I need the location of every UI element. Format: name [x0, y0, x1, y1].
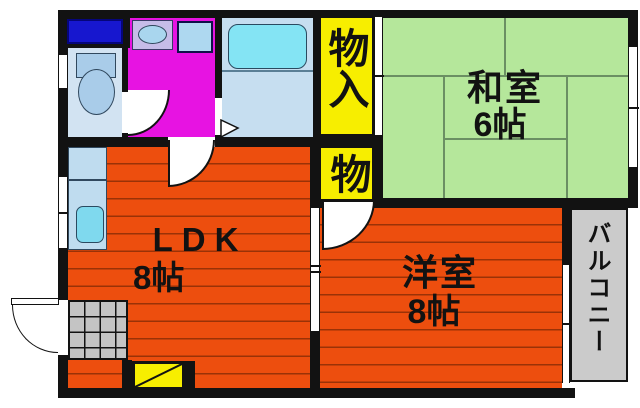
wall-right [628, 10, 638, 47]
kitchen-counter-divider [68, 179, 107, 181]
balcony-label: バルコニー [584, 221, 608, 356]
wall-left [58, 88, 68, 177]
vanity-sink [138, 25, 167, 44]
japanese-room-label: 和室 [440, 70, 570, 106]
kitchen-window [58, 177, 68, 248]
floor-plan: LDK 8帖 和室 6帖 洋室 8帖 物入 物 バルコニー [0, 0, 640, 408]
toilet-bowl [78, 69, 115, 115]
entry-tile [68, 300, 128, 360]
storage-small-label: 物 [326, 153, 367, 194]
wall-western-balcony [562, 208, 570, 265]
wall-ldk-western-bottom [310, 331, 320, 388]
toilet-window [58, 55, 68, 88]
bath-floor-line [222, 70, 313, 72]
bath-door-triangle [220, 119, 240, 138]
entry-door-arc [12, 305, 58, 353]
ldk-western-sliding-door [310, 208, 320, 331]
western-room-size: 8帖 [372, 295, 496, 329]
kitchen-sink [76, 206, 104, 243]
wall-shoebox-side [185, 361, 195, 390]
japanese-room-size: 6帖 [440, 108, 560, 142]
ldk-size: 8帖 [133, 261, 184, 294]
shoe-cabinet [132, 361, 185, 390]
washing-machine [177, 21, 213, 53]
western-room-label: 洋室 [372, 255, 508, 291]
shoe-cabinet-diagonal [135, 364, 182, 387]
japanese-room-window [628, 47, 638, 167]
entry-door-leaf [11, 298, 59, 305]
storage-large-label: 物入 [324, 27, 365, 109]
bathtub [228, 24, 307, 69]
ldk-label: LDK [138, 223, 262, 256]
wall-genkan-side [122, 360, 132, 390]
toilet-window-navy [67, 19, 123, 44]
wall-left [58, 48, 68, 55]
balcony-window [562, 265, 570, 383]
wall-left [58, 248, 68, 300]
entry-opening [58, 300, 68, 355]
